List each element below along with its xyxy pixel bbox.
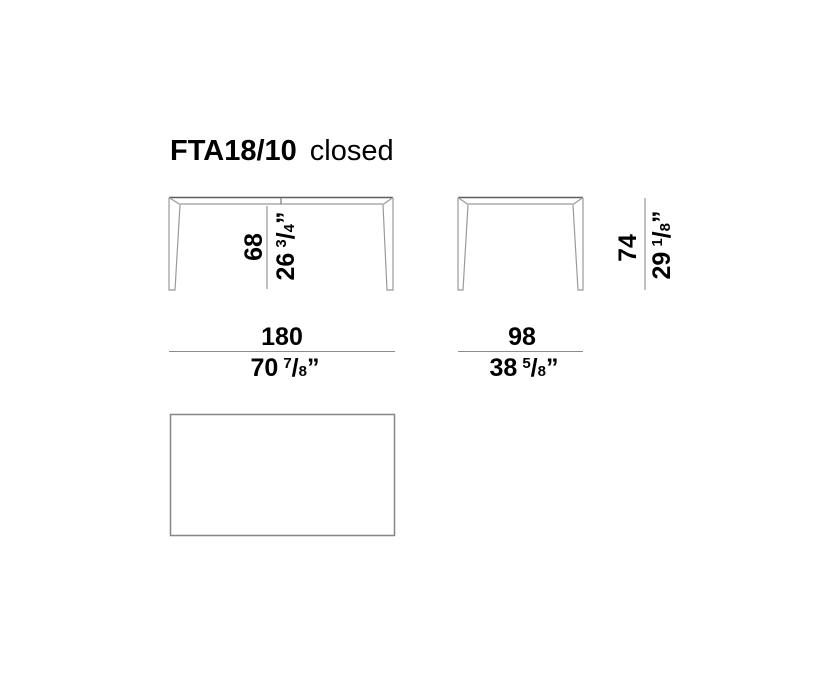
inch-whole: 26 [272,253,300,281]
front-width-cm: 180 [261,324,303,350]
inch-mark: ” [272,212,300,225]
fraction-numerator: 5 [522,355,530,372]
front-right-leg [383,198,393,290]
front-height-inches: 263/4” [273,212,303,281]
fraction-numerator: 3 [273,239,290,247]
side-height-cm: 74 [615,234,641,262]
model-variant: closed [310,135,394,167]
page-title: FTA18/10closed [170,137,394,166]
fraction-denominator: 8 [657,223,674,231]
fraction-denominator: 4 [281,224,298,232]
fraction-numerator: 1 [649,238,666,246]
side-width-inches: 385/8” [490,355,559,385]
side-left-leg [458,198,468,290]
top-view-outline [171,415,395,536]
dimension-drawing-svg [0,0,840,679]
front-width-inches: 707/8” [251,355,320,385]
inch-mark: ” [307,354,320,382]
fraction-slash: / [648,231,676,238]
inch-whole: 70 [251,354,279,382]
side-width-cm: 98 [508,324,536,350]
side-right-leg [573,198,583,290]
side-height-inches: 291/8” [649,211,679,280]
fraction-numerator: 7 [283,355,291,372]
inch-mark: ” [648,211,676,224]
front-height-cm: 68 [241,233,267,261]
model-code: FTA18/10 [170,135,297,167]
front-left-leg [169,198,180,290]
inch-whole: 38 [490,354,518,382]
fraction-slash: / [272,232,300,239]
inch-whole: 29 [648,252,676,280]
side-view-drawing [458,198,583,291]
dimension-sheet: FTA18/10closed 68 263/4” 74 291/8” 180 7… [0,0,840,679]
inch-mark: ” [546,354,559,382]
